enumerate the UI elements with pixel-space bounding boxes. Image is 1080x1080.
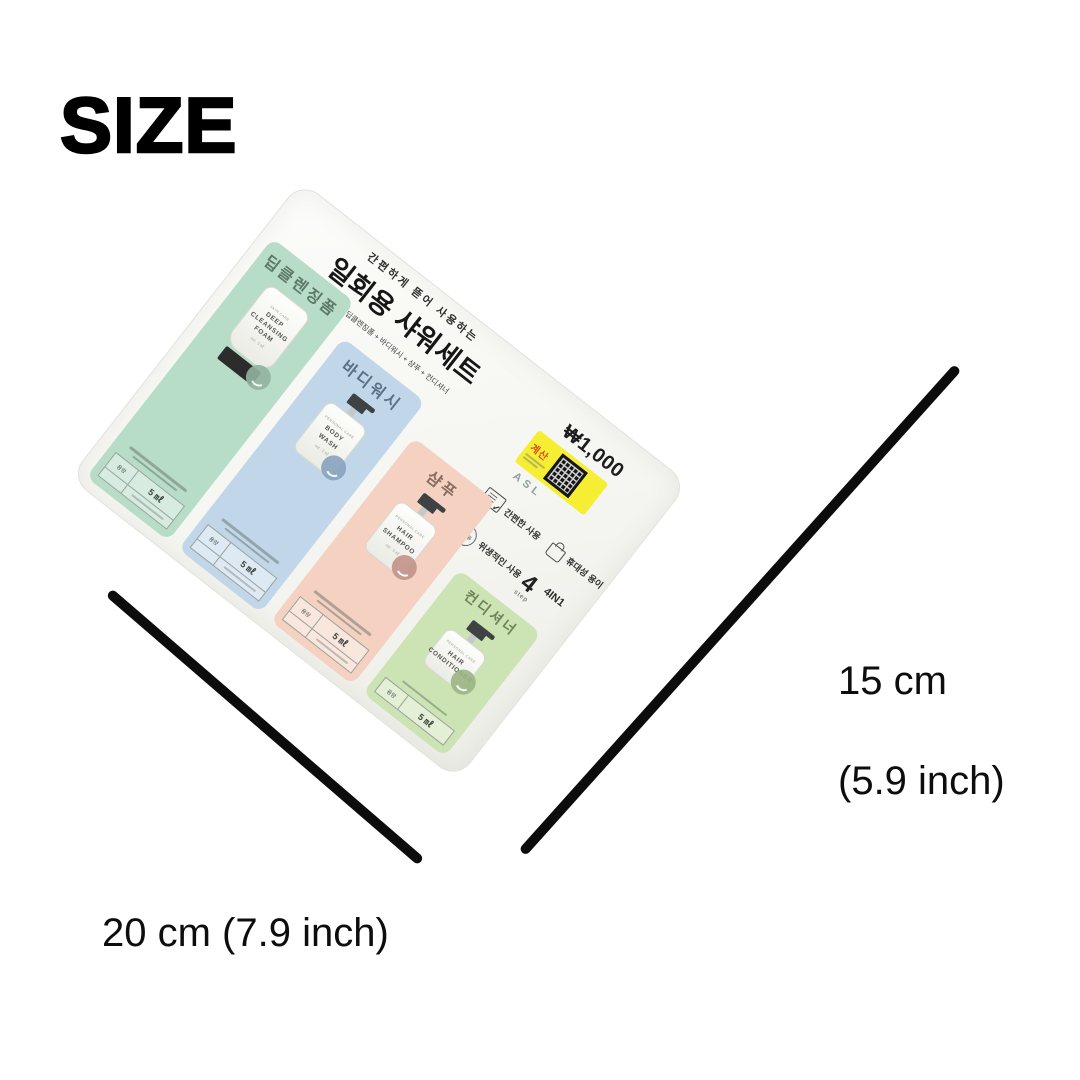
size-infographic: SIZE 간편하게 뜯어 사용하는 일회용 샤워세트 4종 딥클렌징폼 + 바디… xyxy=(0,0,1080,1080)
pump-bottle-graphic: PERSONAL CARE BODY WASH net . 5 ㎖ xyxy=(291,384,381,479)
price-block: ₩1,000 계산 ASL xyxy=(498,404,671,565)
tube-graphic: SKIN CARE DEEP CLEANSING FOAM net . 5 ㎖ xyxy=(213,283,312,389)
page-title: SIZE xyxy=(60,80,237,171)
height-value: 15 cm xyxy=(838,656,1005,706)
product-pouch-photo: 간편하게 뜯어 사용하는 일회용 샤워세트 4종 딥클렌징폼 + 바디워시 + … xyxy=(69,181,689,781)
pump-bottle-graphic: PERSONAL CARE HAIR SHAMPOO net . 5 ㎖ xyxy=(362,483,452,578)
height-dimension-label: 15 cm (5.9 inch) xyxy=(838,606,1005,856)
formula-label: 4IN1 xyxy=(541,586,567,610)
height-inches: (5.9 inch) xyxy=(838,756,1005,806)
width-dimension-label: 20 cm (7.9 inch) xyxy=(102,908,389,958)
